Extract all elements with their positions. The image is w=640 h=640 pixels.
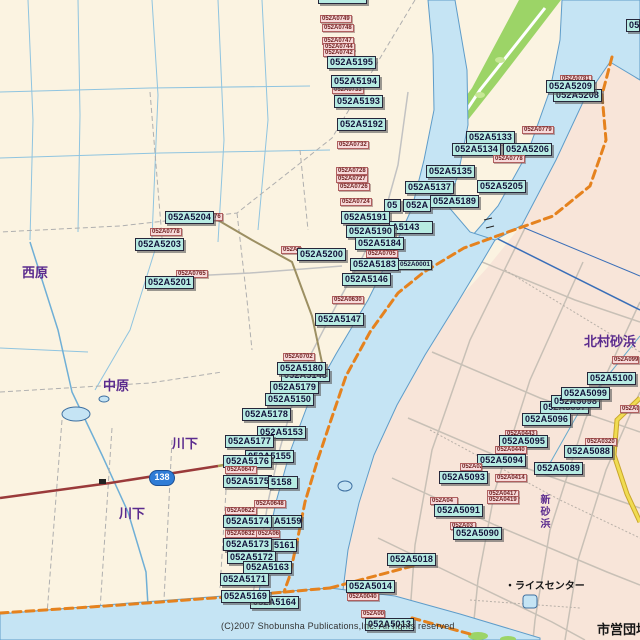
place-name: ・ライスセンター bbox=[505, 577, 585, 592]
place-name: 市営団地 bbox=[597, 619, 640, 638]
map-marker-052A06[interactable]: 052A06 bbox=[256, 530, 280, 538]
map-marker-052A0732[interactable]: 052A0732 bbox=[337, 141, 369, 149]
copyright-text: (C)2007 Shobunsha Publications,Inc. All … bbox=[221, 621, 455, 631]
map-marker-052A5099[interactable]: 052A5099 bbox=[561, 387, 610, 400]
map-marker-052A0778[interactable]: 052A0778 bbox=[493, 155, 525, 163]
map-marker-052A5090[interactable]: 052A5090 bbox=[453, 527, 502, 540]
map-marker-052A0778[interactable]: 052A0778 bbox=[150, 228, 182, 236]
map-marker-052A5189[interactable]: 052A5189 bbox=[430, 195, 479, 208]
map-marker-052A0040[interactable]: 052A0040 bbox=[347, 593, 379, 601]
map-marker-052A0727[interactable]: 052A0727 bbox=[336, 175, 368, 183]
map-marker-052A5203[interactable]: 052A5203 bbox=[135, 238, 184, 251]
map-marker-052A5195[interactable]: 052A5195 bbox=[327, 56, 376, 69]
map-marker-052A0440[interactable]: 052A0440 bbox=[495, 446, 527, 454]
map-marker-052A0749[interactable]: 052A0749 bbox=[320, 15, 352, 23]
map-marker-052A00[interactable]: 052A00 bbox=[361, 610, 385, 618]
map-marker-052A0779[interactable]: 052A0779 bbox=[522, 126, 554, 134]
map-marker-A5143[interactable]: A5143 bbox=[389, 221, 433, 234]
map-marker-052A5135[interactable]: 052A5135 bbox=[426, 165, 475, 178]
map-marker-052A5093[interactable]: 052A5093 bbox=[439, 471, 488, 484]
map-marker-052A5089[interactable]: 052A5089 bbox=[534, 462, 583, 475]
map-marker-052A5193[interactable]: 052A5193 bbox=[334, 95, 383, 108]
map-marker-052[interactable]: 052 bbox=[626, 19, 640, 32]
map-marker-052A0647[interactable]: 052A0647 bbox=[225, 466, 257, 474]
map-marker-052A5171[interactable]: 052A5171 bbox=[220, 573, 269, 586]
map-marker-052A5184[interactable]: 052A5184 bbox=[355, 237, 404, 250]
map-marker-052A5205[interactable]: 052A5205 bbox=[477, 180, 526, 193]
map-marker-052A0728[interactable]: 052A0728 bbox=[336, 167, 368, 175]
map-marker-052A5180[interactable]: 052A5180 bbox=[277, 362, 326, 375]
map-marker-052A5018[interactable]: 052A5018 bbox=[387, 553, 436, 566]
map-viewport[interactable]: 052A5196052A0749052A0748052A0747052A0744… bbox=[0, 0, 640, 640]
map-marker-052A0419[interactable]: 052A0419 bbox=[487, 496, 519, 504]
place-name: 川下 bbox=[172, 433, 198, 452]
map-marker-052A0632[interactable]: 052A0632 bbox=[225, 530, 257, 538]
map-marker-052A0622[interactable]: 052A0622 bbox=[225, 507, 257, 515]
map-marker-052A5173[interactable]: 052A5173 bbox=[223, 538, 272, 551]
map-marker-052A5204[interactable]: 052A5204 bbox=[165, 211, 214, 224]
map-marker-052A0414[interactable]: 052A0414 bbox=[495, 474, 527, 482]
place-name: 中原 bbox=[103, 375, 129, 394]
map-marker-052A0999[interactable]: 052A0999 bbox=[612, 356, 639, 364]
map-marker-052A5014[interactable]: 052A5014 bbox=[346, 580, 395, 593]
map-marker-052A[interactable]: 052A bbox=[403, 199, 431, 212]
map-marker-052A0702[interactable]: 052A0702 bbox=[283, 353, 315, 361]
map-marker-052A5175[interactable]: 052A5175 bbox=[223, 475, 272, 488]
map-marker-052A5094[interactable]: 052A5094 bbox=[477, 454, 526, 467]
route-shield-138: 138 bbox=[149, 470, 175, 486]
map-marker-052A0648[interactable]: 052A0648 bbox=[254, 500, 286, 508]
map-marker-052A5209[interactable]: 052A5209 bbox=[546, 80, 595, 93]
place-name: 新砂浜 bbox=[536, 494, 551, 530]
map-marker-052A0705[interactable]: 052A0705 bbox=[366, 250, 398, 258]
map-marker-052A0630[interactable]: 052A0630 bbox=[332, 296, 364, 304]
map-marker-052A5200[interactable]: 052A5200 bbox=[297, 248, 346, 261]
map-marker-052A0726[interactable]: 052A0726 bbox=[338, 183, 370, 191]
map-marker-052A5169[interactable]: 052A5169 bbox=[221, 590, 270, 603]
map-marker-052A5183[interactable]: 052A5183 bbox=[350, 258, 399, 271]
map-marker-052A02[interactable]: 052A02 bbox=[460, 463, 482, 471]
map-marker-5158[interactable]: 5158 bbox=[268, 476, 298, 489]
map-marker-052A5091[interactable]: 052A5091 bbox=[434, 504, 483, 517]
map-marker-052A0724[interactable]: 052A0724 bbox=[340, 198, 372, 206]
map-marker-052A5178[interactable]: 052A5178 bbox=[242, 408, 291, 421]
map-marker-052A5088[interactable]: 052A5088 bbox=[564, 445, 613, 458]
map-marker-052A5146[interactable]: 052A5146 bbox=[342, 273, 391, 286]
map-marker-052A0001[interactable]: 052A0001 bbox=[398, 260, 432, 270]
map-marker-052A5147[interactable]: 052A5147 bbox=[315, 313, 364, 326]
map-marker-A5159[interactable]: A5159 bbox=[271, 515, 302, 528]
map-marker-052A5177[interactable]: 052A5177 bbox=[225, 435, 274, 448]
map-marker-052A5192[interactable]: 052A5192 bbox=[337, 118, 386, 131]
map-marker-052A5201[interactable]: 052A5201 bbox=[145, 276, 194, 289]
map-marker-052A5194[interactable]: 052A5194 bbox=[331, 75, 380, 88]
map-labels-layer: 052A5196052A0749052A0748052A0747052A0744… bbox=[0, 0, 640, 640]
route-number: 138 bbox=[154, 472, 169, 482]
place-name: 川下 bbox=[119, 503, 145, 522]
map-marker-052A0[interactable]: 052A0 bbox=[620, 405, 639, 413]
map-marker-052A5174[interactable]: 052A5174 bbox=[223, 515, 272, 528]
map-marker-052A0748[interactable]: 052A0748 bbox=[322, 24, 354, 32]
map-marker-052A5137[interactable]: 052A5137 bbox=[405, 181, 454, 194]
place-name: 北村砂浜 bbox=[584, 331, 636, 350]
map-marker-052A5191[interactable]: 052A5191 bbox=[341, 211, 390, 224]
map-marker-052A5096[interactable]: 052A5096 bbox=[522, 413, 571, 426]
map-marker-052A5150[interactable]: 052A5150 bbox=[265, 393, 314, 406]
place-name: 西原 bbox=[22, 262, 48, 281]
map-marker-052A5196[interactable]: 052A5196 bbox=[318, 0, 367, 4]
map-marker-052A5100[interactable]: 052A5100 bbox=[587, 372, 636, 385]
